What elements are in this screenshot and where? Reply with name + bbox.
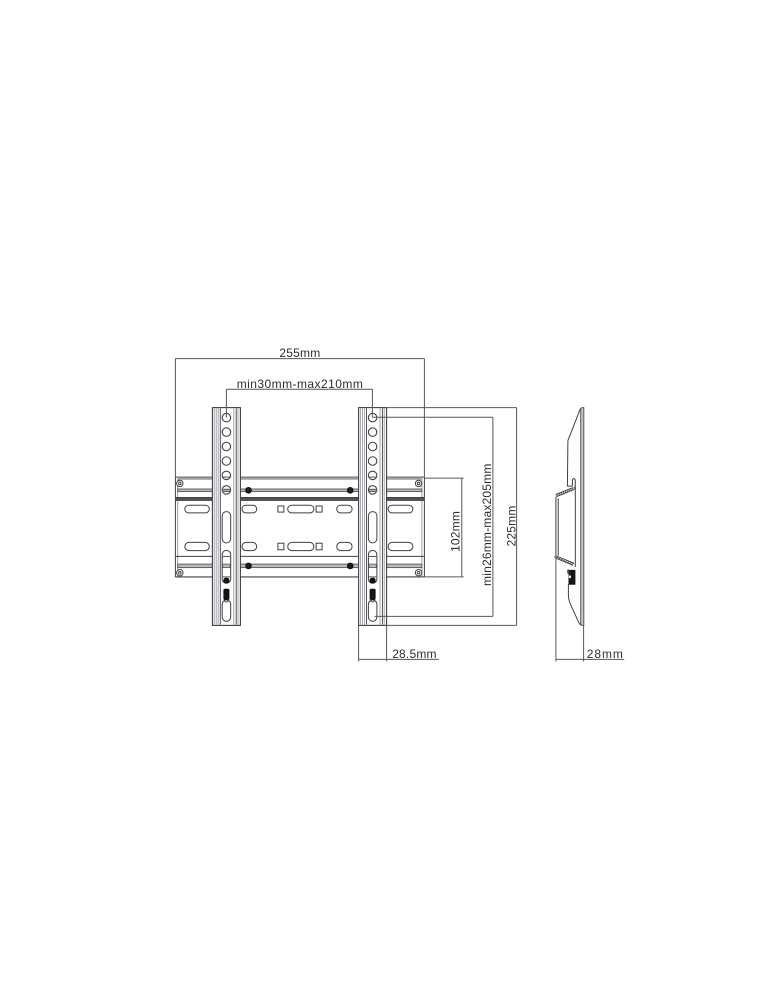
svg-text:255mm: 255mm: [279, 346, 320, 360]
svg-text:225mm: 225mm: [504, 505, 518, 546]
svg-text:28mm: 28mm: [587, 647, 624, 661]
svg-text:102mm: 102mm: [449, 511, 463, 552]
svg-text:28.5mm: 28.5mm: [392, 647, 437, 661]
svg-text:min30mm-max210mm: min30mm-max210mm: [237, 377, 364, 391]
svg-text:min26mm-max205mm: min26mm-max205mm: [480, 463, 494, 586]
